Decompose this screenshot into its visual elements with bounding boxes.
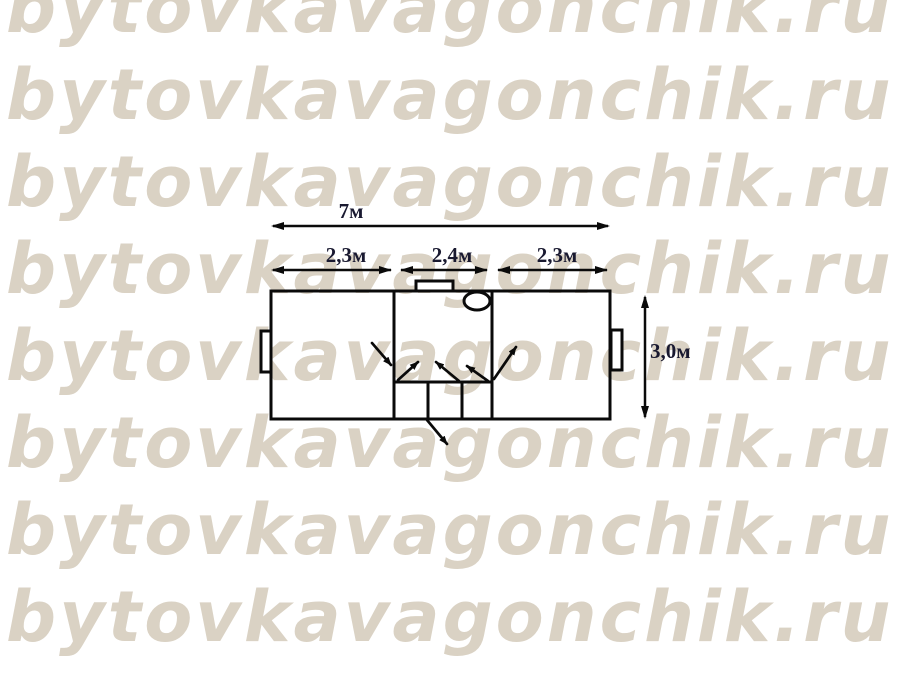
arrowhead-left xyxy=(271,266,284,274)
dimension-height: 3,0м xyxy=(641,295,691,419)
dimension-label-middle-section: 2,4м xyxy=(432,243,473,267)
stove-flue-oval xyxy=(464,292,490,310)
arrowhead-right xyxy=(379,266,392,274)
arrowhead-left xyxy=(271,222,284,230)
arrowhead-left xyxy=(400,266,413,274)
dimension-label-right-section: 2,3м xyxy=(537,243,578,267)
arrowhead-right xyxy=(595,266,608,274)
arrowhead-bottom xyxy=(641,406,649,419)
page: bytovkavagonchik.ru bytovkavagonchik.ru … xyxy=(0,0,900,675)
door-arrow-left-room xyxy=(372,343,391,365)
door-arrow-middle-room-left xyxy=(398,362,418,380)
dimension-right-section: 2,3м xyxy=(497,243,608,274)
dimension-total-width: 7м xyxy=(271,199,610,230)
dimension-left-section: 2,3м xyxy=(271,243,392,274)
chimney-vent-box xyxy=(416,281,453,291)
arrowhead-left xyxy=(497,266,510,274)
window-right xyxy=(611,330,622,370)
window-left xyxy=(261,331,271,372)
dimension-label-left-section: 2,3м xyxy=(326,243,367,267)
door-arrow-middle-room-right xyxy=(467,366,488,381)
door-arrow-entrance xyxy=(427,420,447,444)
arrowhead-right xyxy=(475,266,488,274)
arrowhead-right xyxy=(597,222,610,230)
dimension-label-total-width: 7м xyxy=(339,199,364,223)
door-arrow-middle-room-center xyxy=(436,362,459,381)
dimension-middle-section: 2,4м xyxy=(400,243,488,274)
arrowhead-top xyxy=(641,295,649,308)
building-outline xyxy=(271,291,610,419)
door-arrow-right-room xyxy=(494,347,516,379)
floor-plan-drawing: 7м 2,3м 2,4м 2,3м 3,0м xyxy=(0,0,900,675)
dimension-label-height: 3,0м xyxy=(650,339,691,363)
